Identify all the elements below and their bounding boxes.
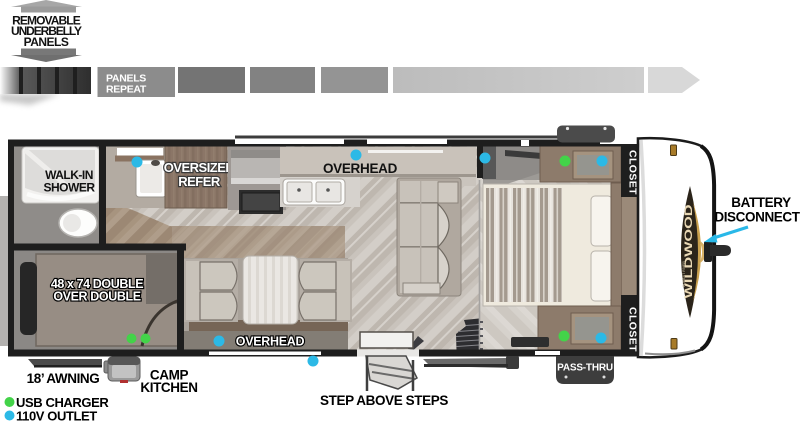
svg-text:OVER DOUBLE: OVER DOUBLE bbox=[53, 290, 140, 304]
svg-text:SHOWER: SHOWER bbox=[44, 181, 96, 195]
svg-text:PASS-THRU: PASS-THRU bbox=[557, 363, 613, 374]
svg-text:FOREST RIVER: FOREST RIVER bbox=[682, 261, 686, 287]
svg-text:OVERHEAD: OVERHEAD bbox=[236, 335, 305, 349]
svg-text:KITCHEN: KITCHEN bbox=[140, 380, 197, 395]
svg-text:110V OUTLET: 110V OUTLET bbox=[16, 409, 97, 422]
svg-text:REFER: REFER bbox=[178, 174, 221, 189]
svg-text:OVERSIZED: OVERSIZED bbox=[164, 160, 235, 175]
svg-text:OVERHEAD: OVERHEAD bbox=[323, 161, 398, 176]
svg-text:BATTERY: BATTERY bbox=[731, 195, 791, 210]
svg-text:STEP ABOVE STEPS: STEP ABOVE STEPS bbox=[320, 393, 448, 408]
svg-text:PANELS: PANELS bbox=[24, 35, 69, 49]
svg-text:DISCONNECT: DISCONNECT bbox=[714, 210, 800, 225]
svg-text:18’ AWNING: 18’ AWNING bbox=[27, 371, 100, 386]
svg-text:REPEAT: REPEAT bbox=[106, 84, 147, 96]
